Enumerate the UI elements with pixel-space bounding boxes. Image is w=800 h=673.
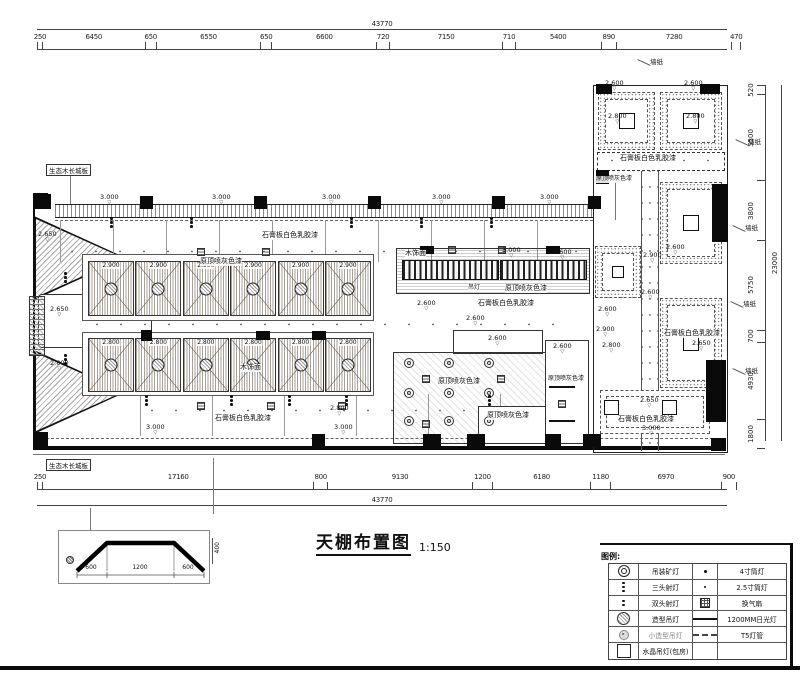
dim-segment: 5400 [515, 42, 601, 50]
downlight-row-2 [85, 322, 575, 327]
hanging-mine-lamp-icon [444, 358, 454, 368]
dim-value: 5750 [747, 277, 755, 295]
section-profile [59, 531, 209, 583]
exhaust-fan-icon [422, 375, 430, 383]
material-label: 原顶喷灰色漆 [596, 176, 632, 183]
three-head-spotlight-icon [420, 221, 423, 224]
legend-label: 双头射灯 [639, 596, 693, 612]
column [312, 434, 325, 447]
dim-right-total: 23000 [771, 252, 779, 274]
legend-icon-cell [693, 580, 718, 596]
elevation-mark: 2.600▽ [553, 343, 572, 354]
elevation-triangle-icon: ▽ [649, 432, 653, 436]
elevation-triangle-icon: ▽ [650, 259, 654, 263]
column [423, 434, 441, 447]
elevation-triangle-icon: ▽ [699, 347, 703, 351]
detail-height-dim-line [212, 538, 213, 564]
material-label: 石膏板白色乳胶漆 [664, 330, 720, 338]
exh-icon [700, 598, 710, 608]
detail-dim-center: 1200 [132, 564, 147, 571]
three-head-spotlight-icon [345, 399, 348, 402]
wallpaper-label: 墙纸 [745, 365, 758, 375]
three-head-spotlight-icon [64, 276, 67, 279]
smshaped-icon [619, 630, 629, 640]
shaped-pendant-lamp-icon [199, 282, 212, 295]
legend-label: 小造型吊灯 [639, 627, 693, 643]
material-label: 木饰面 [240, 364, 261, 372]
column [33, 432, 48, 447]
elevation-mark: 3.000▽ [212, 194, 231, 205]
legend-table: 吊装矿灯4寸筒灯三头射灯2.5寸筒灯双头射灯换气扇造型吊灯1200MM日光灯小造… [608, 563, 787, 660]
dim-value: 7280 [666, 33, 683, 41]
elevation-mark: 2.600▽ [466, 315, 485, 326]
column [312, 331, 326, 340]
coffer-elevation: 2.900 [291, 263, 310, 269]
elevation-triangle-icon: ▽ [560, 350, 564, 354]
elevation-mark: 2.650▽ [50, 306, 69, 317]
three-head-spotlight-icon [488, 399, 491, 402]
fluorescent-lamp-icon [549, 386, 575, 388]
dim-bottom-total: 43770 [372, 496, 393, 504]
exhaust-fan-icon [497, 375, 505, 383]
shaped-pendant-lamp-icon [152, 359, 165, 372]
dim-segment: 720 [376, 42, 388, 50]
exhaust-fan-icon [422, 420, 430, 428]
legend-icon-cell [609, 596, 639, 612]
elevation-triangle-icon: ▽ [473, 322, 477, 326]
legend-label: 换气扇 [718, 596, 786, 612]
dim-segment: 800 [313, 482, 327, 490]
dim-value: 900 [723, 473, 735, 481]
dim-value: 890 [602, 33, 614, 41]
elevation-mark: 2.600▽ [666, 244, 685, 255]
eco-wood-panel-label: 生态木长城板 [46, 164, 91, 176]
dim-segment: 6970 [610, 482, 721, 490]
column [712, 184, 728, 242]
wallpaper-label: 墙纸 [748, 136, 761, 146]
material-label: 原顶喷灰色漆 [505, 285, 547, 293]
material-label: 石膏板白色乳胶漆 [618, 416, 674, 424]
elevation-triangle-icon: ▽ [341, 431, 345, 435]
threedot-icon [622, 586, 625, 589]
fluor-icon [693, 618, 717, 620]
hanging-mine-lamp-icon [444, 388, 454, 398]
legend-label: T5灯管 [718, 627, 786, 643]
legend-label: 2.5寸筒灯 [718, 580, 786, 596]
ceiling-coffer: 2.900 [230, 261, 276, 316]
elevation-mark: 2.650▽ [692, 340, 711, 351]
shaped-pendant-lamp-icon [247, 282, 260, 295]
elevation-mark: 2.900▽ [596, 326, 615, 337]
elevation-mark: 2.800▽ [330, 405, 349, 416]
material-label: 木饰面 [405, 250, 426, 258]
material-label: 原顶喷灰色漆 [548, 376, 584, 383]
elevation-triangle-icon: ▽ [153, 431, 157, 435]
column [492, 196, 505, 209]
dim-value: 17160 [168, 473, 189, 481]
column [254, 196, 267, 209]
hanging-mine-lamp-icon [484, 388, 494, 398]
elevation-triangle-icon: ▽ [439, 201, 443, 205]
shaped-pendant-lamp-icon [105, 359, 118, 372]
hanging-mine-lamp-icon [484, 358, 494, 368]
dim-right-overall: 23000 [781, 85, 782, 441]
elevation-mark: 2.650▽ [640, 397, 659, 408]
coffer-elevation: 2.900 [338, 263, 357, 269]
wallpaper-label: 墙纸 [650, 56, 663, 66]
three-head-spotlight-icon [190, 221, 193, 224]
dim-segment: 520 [757, 85, 765, 94]
dim-value: 6180 [533, 473, 550, 481]
dim-value: 710 [503, 33, 515, 41]
column [140, 196, 153, 209]
drawing-scale: 1:150 [419, 541, 451, 556]
legend-label: 三头射灯 [639, 580, 693, 596]
dim-value: 250 [34, 33, 46, 41]
detail-dim-left: 600 [85, 564, 96, 571]
elevation-mark: 2.600▽ [488, 335, 507, 346]
dim-segment: 17160 [42, 482, 314, 490]
legend-icon-cell [693, 596, 718, 612]
ceiling-plan-sheet: 43770 2506450650655065066007207150710540… [0, 0, 800, 673]
elevation-mark: 3.000▽ [642, 425, 661, 436]
hanging-mine-lamp-icon [444, 416, 454, 426]
three-head-spotlight-icon [288, 399, 291, 402]
ceiling-coffer: 2.900 [88, 261, 134, 316]
shaped-pendant-lamp-icon [342, 359, 355, 372]
legend-label: 造型吊灯 [639, 611, 693, 627]
dim-segment: 6450 [42, 42, 145, 50]
small-left-room [595, 246, 641, 298]
legend-icon-cell [609, 564, 639, 580]
ceiling-coffer: 2.800 [278, 338, 324, 392]
crystal-chandelier-icon [662, 400, 677, 415]
elevation-mark: 3.000▽ [502, 247, 521, 258]
dim-segment: 1800 [757, 419, 765, 449]
elevation-triangle-icon: ▽ [603, 333, 607, 337]
elevation-triangle-icon: ▽ [337, 412, 341, 416]
exhaust-fan-icon [267, 402, 275, 410]
dim-bottom-chain: 2501716080091301200618011806970900 [37, 482, 727, 490]
legend-icon-cell [609, 627, 639, 643]
bottom-wall-inner-line [33, 454, 725, 455]
elevation-mark: 3.000▽ [322, 194, 341, 205]
dim-value: 250 [34, 473, 46, 481]
column [467, 434, 485, 447]
dim-value: 650 [260, 33, 272, 41]
wallpaper-label: 墙纸 [743, 298, 756, 308]
dim-bottom-overall: 43770 [37, 505, 727, 506]
legend-icon-cell [609, 580, 639, 596]
elevation-triangle-icon: ▽ [693, 120, 697, 124]
elevation-triangle-icon: ▽ [648, 296, 652, 300]
elevation-mark: 2.800▽ [608, 113, 627, 124]
hanging-mine-lamp-icon [404, 388, 414, 398]
elevation-triangle-icon: ▽ [219, 201, 223, 205]
legend-icon-cell [609, 643, 639, 659]
material-label: 石膏板白色乳胶漆 [620, 155, 676, 163]
elevation-triangle-icon: ▽ [495, 342, 499, 346]
dim-top-overall: 43770 [37, 29, 727, 30]
dim-value: 6970 [658, 473, 675, 481]
ceiling-coffer: 2.900 [325, 261, 371, 316]
dim-segment: 4930 [757, 342, 765, 419]
dim-segment: 7280 [616, 42, 732, 50]
ring-icon [618, 565, 630, 577]
material-label: 吊灯 [468, 285, 480, 292]
legend-label: 1200MM日光灯 [718, 611, 786, 627]
crystal-chandelier-icon [612, 266, 624, 278]
elevation-triangle-icon: ▽ [107, 201, 111, 205]
dim-value: 470 [730, 33, 742, 41]
detail-height-label: 400 [214, 542, 221, 553]
titleblock-right-border [790, 543, 793, 670]
exhaust-fan-icon [197, 402, 205, 410]
three-head-spotlight-icon [145, 399, 148, 402]
legend-label [718, 643, 786, 659]
dot4-icon [704, 570, 707, 573]
elevation-mark: 2.600▽ [598, 306, 617, 317]
grille-left [402, 260, 499, 280]
hanging-mine-lamp-icon [404, 416, 414, 426]
ceiling-coffer: 2.800 [325, 338, 371, 392]
dim-segment: 470 [731, 42, 740, 50]
elevation-triangle-icon: ▽ [547, 201, 551, 205]
elevation-mark: 2.600▽ [605, 80, 624, 91]
detail-dim-right: 600 [182, 564, 193, 571]
ladder-hatch-strip [29, 296, 45, 356]
column [711, 438, 726, 451]
wing-partition-line [615, 182, 616, 220]
elevation-triangle-icon: ▽ [57, 313, 61, 317]
legend-icon-cell [693, 564, 718, 580]
shaped-pendant-lamp-icon [294, 282, 307, 295]
dim-segment: 6550 [156, 42, 260, 50]
dim-top-total: 43770 [372, 20, 393, 28]
material-label: 石膏板白色乳胶漆 [262, 232, 318, 240]
elevation-mark: 2.800▽ [50, 360, 69, 371]
coffer-elevation: 2.800 [101, 340, 120, 346]
elevation-triangle-icon: ▽ [57, 367, 61, 371]
dim-segment: 3800 [757, 180, 765, 240]
ceiling-coffer: 2.800 [88, 338, 134, 392]
dim-value: 1800 [747, 425, 755, 443]
page-title: 天棚布置图 [316, 528, 411, 556]
material-label: 原顶喷灰色漆 [487, 412, 529, 420]
hanging-mine-lamp-icon [404, 358, 414, 368]
three-head-spotlight-icon [230, 399, 233, 402]
dim-value: 650 [144, 33, 156, 41]
eco-wood-leader [70, 176, 71, 204]
elevation-mark: 3.000▽ [432, 194, 451, 205]
shaped-pendant-lamp-icon [199, 359, 212, 372]
legend-label: 水晶吊灯(包房) [639, 643, 693, 659]
dim-segment: 1180 [590, 482, 610, 490]
three-head-spotlight-icon [490, 221, 493, 224]
grille-right [500, 260, 587, 280]
elevation-mark: 2.600▽ [553, 249, 572, 260]
legend-icon-cell [609, 611, 639, 627]
dim-value: 520 [747, 83, 755, 96]
dim-value: 1180 [592, 473, 609, 481]
coffer-elevation: 2.900 [244, 263, 263, 269]
elevation-triangle-icon: ▽ [329, 201, 333, 205]
elevation-triangle-icon: ▽ [691, 87, 695, 91]
elevation-mark: 3.000▽ [334, 424, 353, 435]
ceiling-coffer: 2.900 [278, 261, 324, 316]
column [700, 84, 720, 94]
dim-segment: 1200 [472, 482, 492, 490]
titleblock-top-border [600, 543, 793, 545]
dim-segment: 700 [757, 330, 765, 342]
exhaust-fan-icon [262, 248, 270, 256]
material-label: 石膏板白色乳胶漆 [215, 415, 271, 423]
elevation-mark: 2.600▽ [641, 289, 660, 300]
coffer-elevation: 2.900 [149, 263, 168, 269]
dim-top-chain: 2506450650655065066007207150710540089072… [37, 42, 727, 50]
legend-label: 吊装矿灯 [639, 564, 693, 580]
detail-lamp-icon [66, 556, 74, 564]
ceiling-coffer: 2.900 [135, 261, 181, 316]
dim-segment: 710 [502, 42, 514, 50]
material-label: 石膏板白色乳胶漆 [478, 300, 534, 308]
dim-segment: 6180 [492, 482, 590, 490]
dim-value: 700 [747, 330, 755, 343]
dim-value: 6600 [316, 33, 333, 41]
coffer-elevation: 2.800 [244, 340, 263, 346]
three-head-spotlight-icon [350, 221, 353, 224]
dot25-icon [704, 586, 706, 588]
shaped-pendant-lamp-icon [105, 282, 118, 295]
dim-value: 3800 [747, 202, 755, 220]
shaped-pendant-lamp-icon [152, 282, 165, 295]
elevation-triangle-icon: ▽ [605, 313, 609, 317]
ceiling-coffer: 2.900 [183, 261, 229, 316]
ceiling-coffer: 2.800 [135, 338, 181, 392]
column [256, 331, 270, 340]
legend-icon-cell [693, 611, 718, 627]
coffer-elevation: 2.800 [196, 340, 215, 346]
fluorescent-room [545, 340, 589, 444]
elevation-mark: 3.000▽ [146, 424, 165, 435]
shaped-icon [617, 612, 630, 625]
exhaust-fan-icon [197, 248, 205, 256]
column [368, 196, 381, 209]
dim-segment: 5750 [757, 240, 765, 330]
crystal-chandelier-icon [683, 215, 699, 231]
dim-segment: 9130 [327, 482, 472, 490]
eco-wood-panel-label: 生态木长城板 [46, 459, 91, 471]
elevation-triangle-icon: ▽ [509, 254, 513, 258]
crystal-icon [617, 644, 631, 658]
elevation-triangle-icon: ▽ [673, 251, 677, 255]
elevation-triangle-icon: ▽ [560, 256, 564, 260]
dim-value: 1200 [474, 473, 491, 481]
column [33, 193, 48, 209]
ceiling-coffer: 2.800 [183, 338, 229, 392]
shaped-pendant-lamp-icon [294, 359, 307, 372]
elevation-triangle-icon: ▽ [647, 404, 651, 408]
dim-value: 6450 [85, 33, 102, 41]
elevation-mark: 2.800▽ [602, 342, 621, 353]
t5-icon [693, 634, 717, 636]
dim-segment: 6600 [271, 42, 376, 50]
detail-extension-line [213, 458, 214, 514]
coffer-elevation: 2.800 [291, 340, 310, 346]
elevation-triangle-icon: ▽ [612, 87, 616, 91]
legend-icon-cell [693, 643, 718, 659]
elevation-mark: 3.000▽ [100, 194, 119, 205]
dim-segment: 650 [145, 42, 156, 50]
legend-icon-cell [693, 627, 718, 643]
elevation-triangle-icon: ▽ [609, 349, 613, 353]
coffer-elevation: 2.800 [338, 340, 357, 346]
elevation-mark: 2.900▽ [643, 252, 662, 263]
top-corridor-strip [55, 204, 593, 218]
dim-segment: 650 [260, 42, 271, 50]
coffer-elevation: 2.900 [101, 263, 120, 269]
twodot-icon [622, 600, 625, 603]
dim-value: 7150 [438, 33, 455, 41]
material-label: 原顶喷灰色漆 [200, 258, 242, 266]
shaped-pendant-lamp-icon [342, 282, 355, 295]
dim-segment: 890 [601, 42, 616, 50]
dim-value: 720 [377, 33, 389, 41]
ceiling-section-detail [58, 530, 210, 584]
crystal-chandelier-icon [604, 400, 619, 415]
fluorescent-lamp-icon [549, 420, 575, 422]
legend-title: 图例: [601, 551, 620, 562]
column [141, 330, 152, 341]
column [588, 196, 601, 209]
dim-segment: 7150 [389, 42, 503, 50]
drawing-title-block: 天棚布置图 1:150 [316, 528, 451, 556]
legend-label: 4寸筒灯 [718, 564, 786, 580]
dim-value: 800 [315, 473, 327, 481]
exhaust-fan-icon [448, 246, 456, 254]
material-label: 原顶喷灰色漆 [438, 378, 480, 386]
elevation-mark: 2.600▽ [417, 300, 436, 311]
elevation-triangle-icon: ▽ [45, 238, 49, 242]
elevation-triangle-icon: ▽ [615, 120, 619, 124]
elevation-mark: 2.650▽ [38, 231, 57, 242]
sheet-bottom-border [0, 666, 800, 670]
dim-value: 6550 [200, 33, 217, 41]
exhaust-fan-icon [558, 400, 566, 408]
elevation-mark: 2.800▽ [686, 113, 705, 124]
elevation-mark: 2.600▽ [684, 80, 703, 91]
dim-segment: 900 [721, 482, 737, 490]
elevation-mark: 3.000▽ [540, 194, 559, 205]
column [545, 434, 561, 447]
dim-value: 9130 [392, 473, 409, 481]
column [583, 434, 601, 447]
wallpaper-label: 墙纸 [745, 222, 758, 232]
detail-leader-line [90, 508, 91, 530]
dim-value: 5400 [550, 33, 567, 41]
column [706, 360, 726, 422]
three-head-spotlight-icon [110, 221, 113, 224]
elevation-triangle-icon: ▽ [424, 307, 428, 311]
